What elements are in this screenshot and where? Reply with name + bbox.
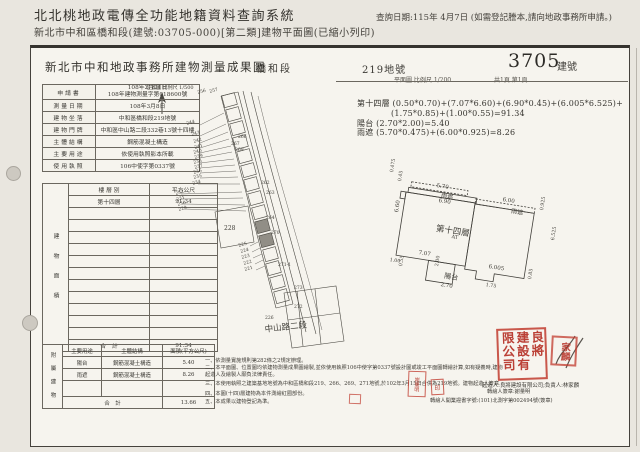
empty-cell — [63, 381, 102, 397]
area-table-side-label: 建物面積 — [43, 184, 69, 352]
page-count-note: 共1頁 第1頁 — [494, 75, 528, 84]
field-value: 108年3月8日 — [96, 100, 200, 112]
annex-structure: 鋼筋混凝土構造 — [102, 369, 163, 381]
empty-cell — [69, 316, 150, 328]
empty-cell — [102, 381, 163, 397]
company-seal-column: 限公司 — [500, 331, 516, 377]
formula-line: (1.75*0.85)+(1.00*0.55)=91.34 — [357, 109, 635, 119]
floor-plan — [388, 180, 536, 295]
empty-cell — [150, 208, 218, 220]
land-number: 219地號 — [362, 61, 406, 76]
annex-structure: 鋼筋混凝土構造 — [102, 357, 163, 369]
transcriber-license-line: 轉繪人開業證書字號:(101)北測字第002494號(簽章) — [430, 397, 553, 404]
transcriber-seal: 謝量明 — [408, 371, 427, 398]
empty-cell — [150, 220, 218, 232]
transcriber-seal-text: 謝量明 — [413, 376, 421, 391]
lower-building-block — [284, 286, 344, 348]
column-header: 主要用途 — [63, 345, 102, 357]
company-seal-column: 良將 — [529, 330, 545, 376]
area-formulas: 第十四層 (0.50*0.70)+(7.07*6.60)+(6.90*0.45)… — [357, 99, 635, 138]
floor-name: 第十四層 — [69, 196, 150, 208]
empty-cell — [69, 256, 150, 268]
empty-cell — [150, 292, 218, 304]
empty-cell — [150, 268, 218, 280]
formula-line: 第十四層 (0.50*0.70)+(7.07*6.60)+(6.90*0.45)… — [357, 99, 635, 109]
plan-scale-note: 平面圖 比例尺 1/200 — [394, 75, 451, 84]
person-seal: 家麟 — [550, 335, 578, 366]
empty-cell — [69, 304, 150, 316]
apply-doc-number: 108年建物測量字第018600號 — [97, 92, 198, 99]
empty-cell — [69, 220, 150, 232]
note-line: 四、本圖(十四)層建物為本件測繪紅圈部份。 — [205, 391, 465, 398]
empty-cell — [69, 280, 150, 292]
small-seal-text: 印 — [434, 382, 440, 391]
parcel-228-outline — [215, 206, 254, 248]
person-seal-text: 家麟 — [557, 341, 572, 361]
field-value: 108年2月21日 108年建物測量字第018600號 — [96, 85, 200, 100]
field-value: 鋼筋混凝土構造 — [96, 136, 200, 148]
balcony-outline — [425, 260, 455, 284]
annex-use: 雨遮 — [63, 369, 102, 381]
field-label: 建物坐落 — [43, 112, 96, 124]
note-line: 五、本成果以建物登記為準。 — [205, 399, 445, 406]
column-header: 面積(平方公尺) — [163, 345, 215, 357]
empty-cell — [150, 304, 218, 316]
header-rule — [336, 81, 628, 82]
tiny-seal-mark — [349, 394, 361, 404]
section-name: 橋和段 — [256, 60, 292, 75]
scanned-document-page: 北北桃地政電傳全功能地籍資料查詢系統 新北市中和區橋和段(建號:03705-00… — [0, 0, 640, 452]
field-value: 依使用執照影本所載 — [96, 148, 200, 160]
formula-line: 陽台 (2.70*2.00)=5.40 — [357, 119, 635, 129]
empty-cell — [150, 232, 218, 244]
field-value: 中和區中山路二段332巷13號十四樓 — [96, 124, 200, 136]
building-area-table: 建物面積 樓 層 別 平方公尺 第十四層 91.34 合 計 91.34 — [42, 183, 218, 352]
empty-cell — [69, 244, 150, 256]
column-header: 樓 層 別 — [69, 184, 150, 196]
empty-cell — [69, 232, 150, 244]
small-seal: 印 — [431, 379, 445, 396]
annex-use: 陽台 — [63, 357, 102, 369]
field-value: 中和區橋和段219地號 — [96, 112, 200, 124]
field-label: 使用執照 — [43, 160, 96, 172]
column-header: 主體結構 — [102, 345, 163, 357]
apply-date: 108年2月21日 — [97, 85, 198, 92]
company-seal-column: 建設有 — [514, 331, 530, 377]
company-seal: 良將 建設有 限公司 — [496, 327, 548, 381]
top-strip-outline — [408, 187, 477, 203]
application-info-table: 申請書 108年2月21日 108年建物測量字第018600號 測量日期 108… — [42, 84, 200, 172]
empty-cell — [69, 268, 150, 280]
office-title: 新北市中和地政事務所建物測量成果圖 — [45, 59, 266, 75]
empty-cell — [150, 244, 218, 256]
empty-cell — [150, 256, 218, 268]
empty-cell — [69, 208, 150, 220]
field-value: 106中使字第0337號 — [96, 160, 200, 172]
right-room-outline — [463, 204, 534, 286]
field-label: 測量日期 — [43, 100, 96, 112]
empty-cell — [150, 280, 218, 292]
column-header: 平方公尺 — [150, 184, 218, 196]
punch-hole — [6, 166, 21, 181]
field-label: 申請書 — [43, 85, 96, 100]
empty-cell — [69, 328, 150, 340]
note-line: 二、本平面圖、位置圖均依建物測量成果圖繪製,並依使用執照106中使字第0337號… — [205, 365, 505, 379]
field-label: 建物門牌 — [43, 124, 96, 136]
formula-line: 雨遮 (5.70*0.475)+(6.00*0.925)=8.26 — [357, 128, 635, 138]
building-number: 3705 — [508, 50, 560, 72]
left-room-outline — [396, 192, 475, 266]
field-label: 主體結構 — [43, 136, 96, 148]
floor-area: 91.34 — [150, 196, 218, 208]
empty-cell — [150, 328, 218, 340]
canopy-right-outline — [475, 199, 535, 213]
punch-hole — [22, 315, 38, 331]
annex-building-table: 附屬建物 主要用途 主體結構 面積(平方公尺) 陽台 鋼筋混凝土構造 5.40 … — [42, 344, 215, 409]
transcriber-signature-line: 轉繪人簽章:謝量明 — [487, 388, 530, 395]
total-label: 合 計 — [63, 397, 163, 409]
field-label: 主要用途 — [43, 148, 96, 160]
empty-cell — [150, 316, 218, 328]
building-number-suffix: 建號 — [557, 58, 577, 73]
empty-cell — [69, 292, 150, 304]
annex-table-side-label: 附屬建物 — [43, 345, 63, 409]
